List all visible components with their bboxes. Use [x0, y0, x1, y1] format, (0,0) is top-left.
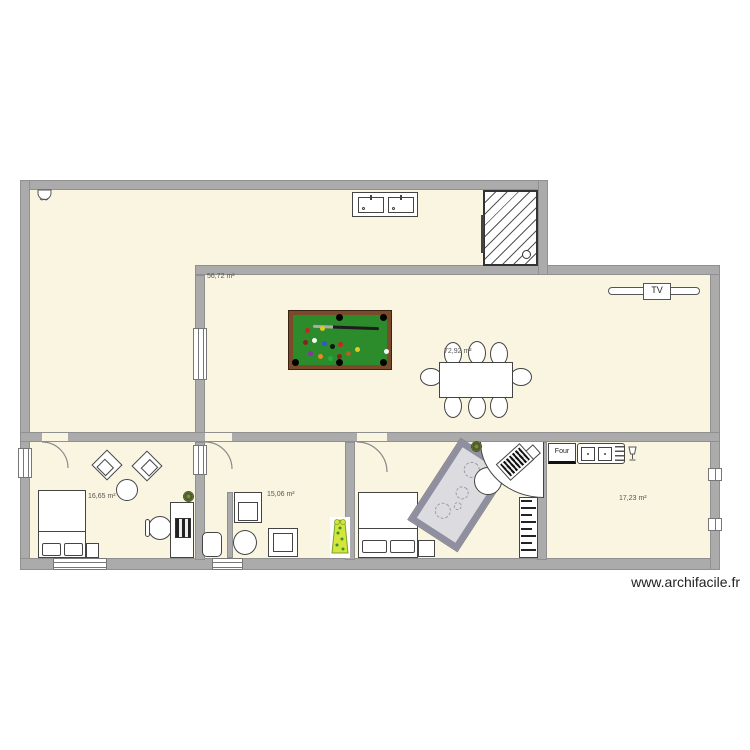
wall-strip-right[interactable] [538, 180, 548, 275]
window-interior-vertical[interactable] [193, 328, 207, 380]
glass-icon[interactable] [627, 445, 639, 463]
armchair-square-top[interactable] [234, 492, 262, 523]
cabinet-rounded[interactable] [202, 532, 222, 557]
bed-double-chambre-1[interactable] [38, 490, 86, 558]
tv-label: TV [651, 285, 663, 295]
dining-chair[interactable] [468, 395, 486, 419]
room-area-label-grande-piece: 56,72 m² [207, 273, 235, 281]
floor-plan-canvas: TV [0, 0, 750, 750]
nightstand-chambre-1[interactable] [86, 543, 99, 558]
window-right-cuisine-1[interactable] [708, 468, 722, 481]
window-left-chambre-1[interactable] [18, 448, 32, 478]
oven-label: Four [549, 444, 575, 460]
wall-outer-bottom[interactable] [20, 558, 720, 570]
door-opening-piece-milieu[interactable] [205, 433, 232, 441]
office-chair-back [145, 519, 150, 537]
sink-basin [581, 447, 595, 461]
hatched-panel-hinge-line [481, 215, 484, 253]
bed-double-chambre-2[interactable] [358, 492, 418, 558]
door-arc-chambre-2[interactable] [357, 442, 388, 473]
fridge-lines-icon [615, 446, 624, 462]
basin-left [358, 197, 384, 213]
room-area-label-piece-milieu: 15,06 m² [267, 491, 295, 499]
wall-light-icon[interactable] [36, 188, 54, 206]
sink-basin [598, 447, 612, 461]
billiard-balls [293, 315, 298, 320]
desk-chambre-1[interactable] [170, 502, 194, 558]
computer-icon [175, 518, 191, 538]
room-floor-left-leg[interactable] [30, 190, 195, 432]
dining-table[interactable] [439, 362, 513, 398]
wall-outer-left[interactable] [20, 180, 30, 570]
plant-icon-small[interactable] [471, 441, 482, 452]
billiard-table[interactable] [289, 311, 391, 369]
window-bottom-chambre-1[interactable] [53, 558, 107, 570]
room-area-label-sejour: 72,92 m² [444, 348, 472, 356]
round-table-chambre-1[interactable] [116, 479, 138, 501]
wall-top-sejour[interactable] [195, 265, 720, 275]
double-basin-unit[interactable] [352, 192, 418, 217]
oven[interactable]: Four [548, 443, 576, 464]
tv-unit[interactable]: TV [643, 283, 671, 300]
window-right-cuisine-2[interactable] [708, 518, 722, 531]
armchair-square-bottom[interactable] [268, 528, 298, 557]
pillow [362, 540, 387, 553]
archifacile-watermark: www.archifacile.fr [540, 574, 740, 590]
office-chair-chambre-1[interactable] [148, 516, 172, 540]
plant-icon-large[interactable] [331, 519, 349, 557]
door-opening-chambre-2[interactable] [357, 433, 387, 441]
pillow [42, 543, 61, 556]
dining-chair[interactable] [510, 368, 532, 386]
kitchen-sink-fridge-unit[interactable] [577, 443, 625, 464]
pillow [64, 543, 83, 556]
nightstand-chambre-2[interactable] [418, 540, 435, 557]
billiard-cue [313, 325, 379, 330]
window-bottom-piece-milieu[interactable] [212, 558, 243, 570]
door-opening-chambre-1[interactable] [42, 433, 68, 441]
wall-partition-stub[interactable] [227, 492, 233, 558]
hatched-panel-handle-circle [522, 250, 531, 259]
room-area-label-chambre-1: 16,65 m² [88, 493, 116, 501]
bookshelf[interactable] [519, 497, 538, 558]
pillow [390, 540, 415, 553]
basin-right [388, 197, 414, 213]
room-area-label-cuisine: 17,23 m² [619, 495, 647, 503]
round-table-piece-milieu[interactable] [233, 530, 257, 555]
plant-icon-small[interactable] [183, 491, 194, 502]
door-arc-chambre-1[interactable] [42, 442, 69, 469]
door-arc-piece-milieu[interactable] [205, 442, 233, 470]
wall-top-left-strip[interactable] [20, 180, 548, 190]
